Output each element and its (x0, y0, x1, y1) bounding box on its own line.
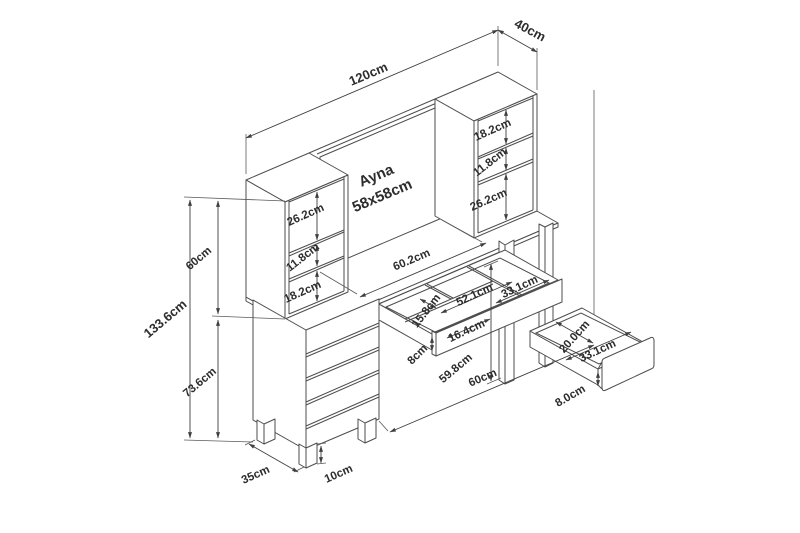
right-drawer-panel-join (598, 385, 602, 389)
foot-height-label: 10cm (323, 463, 355, 486)
total-width-label: 120cm (347, 59, 390, 89)
extension-line (294, 467, 304, 472)
extension-line (317, 463, 326, 464)
table-height-label: 73.6cm (181, 366, 219, 400)
front-right-foot-front (365, 418, 376, 443)
right-tower-side-face (435, 99, 474, 238)
right-drawer-height-label: 8.0cm (553, 383, 587, 410)
right-shelf-tower: 18.2cm 11.8cm 26.2cm (435, 72, 537, 238)
front-left-foot-side (299, 444, 306, 468)
front-left-foot-front (306, 443, 317, 468)
hutch-height-label: 60cm (184, 245, 214, 273)
middle-drawer-front-sliver (432, 331, 436, 356)
vanity-dimension-diagram: Ayna 58x58cm 26.2cm 11.8cm 18.2cm (0, 0, 800, 533)
left-shelf-tower: 26.2cm 11.8cm 18.2cm (246, 153, 348, 319)
base-width-label: 60cm (467, 367, 499, 390)
back-foot-side (257, 420, 264, 444)
total-height-label: 133.6cm (141, 296, 190, 340)
front-right-foot-side (358, 419, 365, 443)
extension-line (184, 440, 253, 442)
back-foot-front (264, 419, 275, 444)
base-depth-label: 35cm (240, 464, 272, 487)
technical-drawing-page: Ayna 58x58cm 26.2cm 11.8cm 18.2cm (0, 0, 800, 533)
total-depth-label: 40cm (512, 16, 548, 45)
extension-line (379, 421, 388, 431)
